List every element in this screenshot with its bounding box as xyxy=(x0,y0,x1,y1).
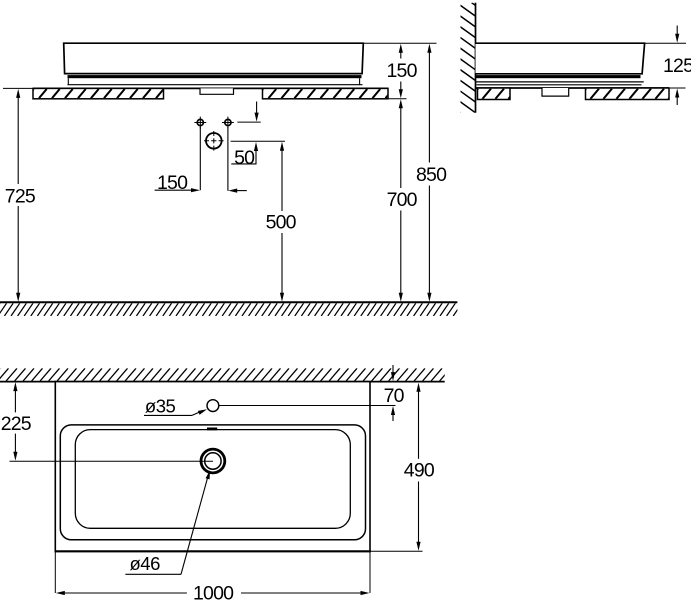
svg-text:125: 125 xyxy=(663,55,691,77)
svg-text:ø46: ø46 xyxy=(130,553,161,574)
svg-text:225: 225 xyxy=(1,413,32,435)
svg-text:50: 50 xyxy=(234,147,255,169)
svg-text:ø35: ø35 xyxy=(145,396,176,417)
svg-text:500: 500 xyxy=(266,212,297,234)
svg-text:490: 490 xyxy=(404,460,435,482)
svg-text:725: 725 xyxy=(5,185,36,207)
svg-text:700: 700 xyxy=(387,189,418,211)
svg-text:1000: 1000 xyxy=(193,583,234,601)
svg-text:150: 150 xyxy=(157,172,188,194)
svg-text:850: 850 xyxy=(416,164,447,186)
svg-text:150: 150 xyxy=(387,60,418,82)
svg-text:70: 70 xyxy=(384,385,405,407)
